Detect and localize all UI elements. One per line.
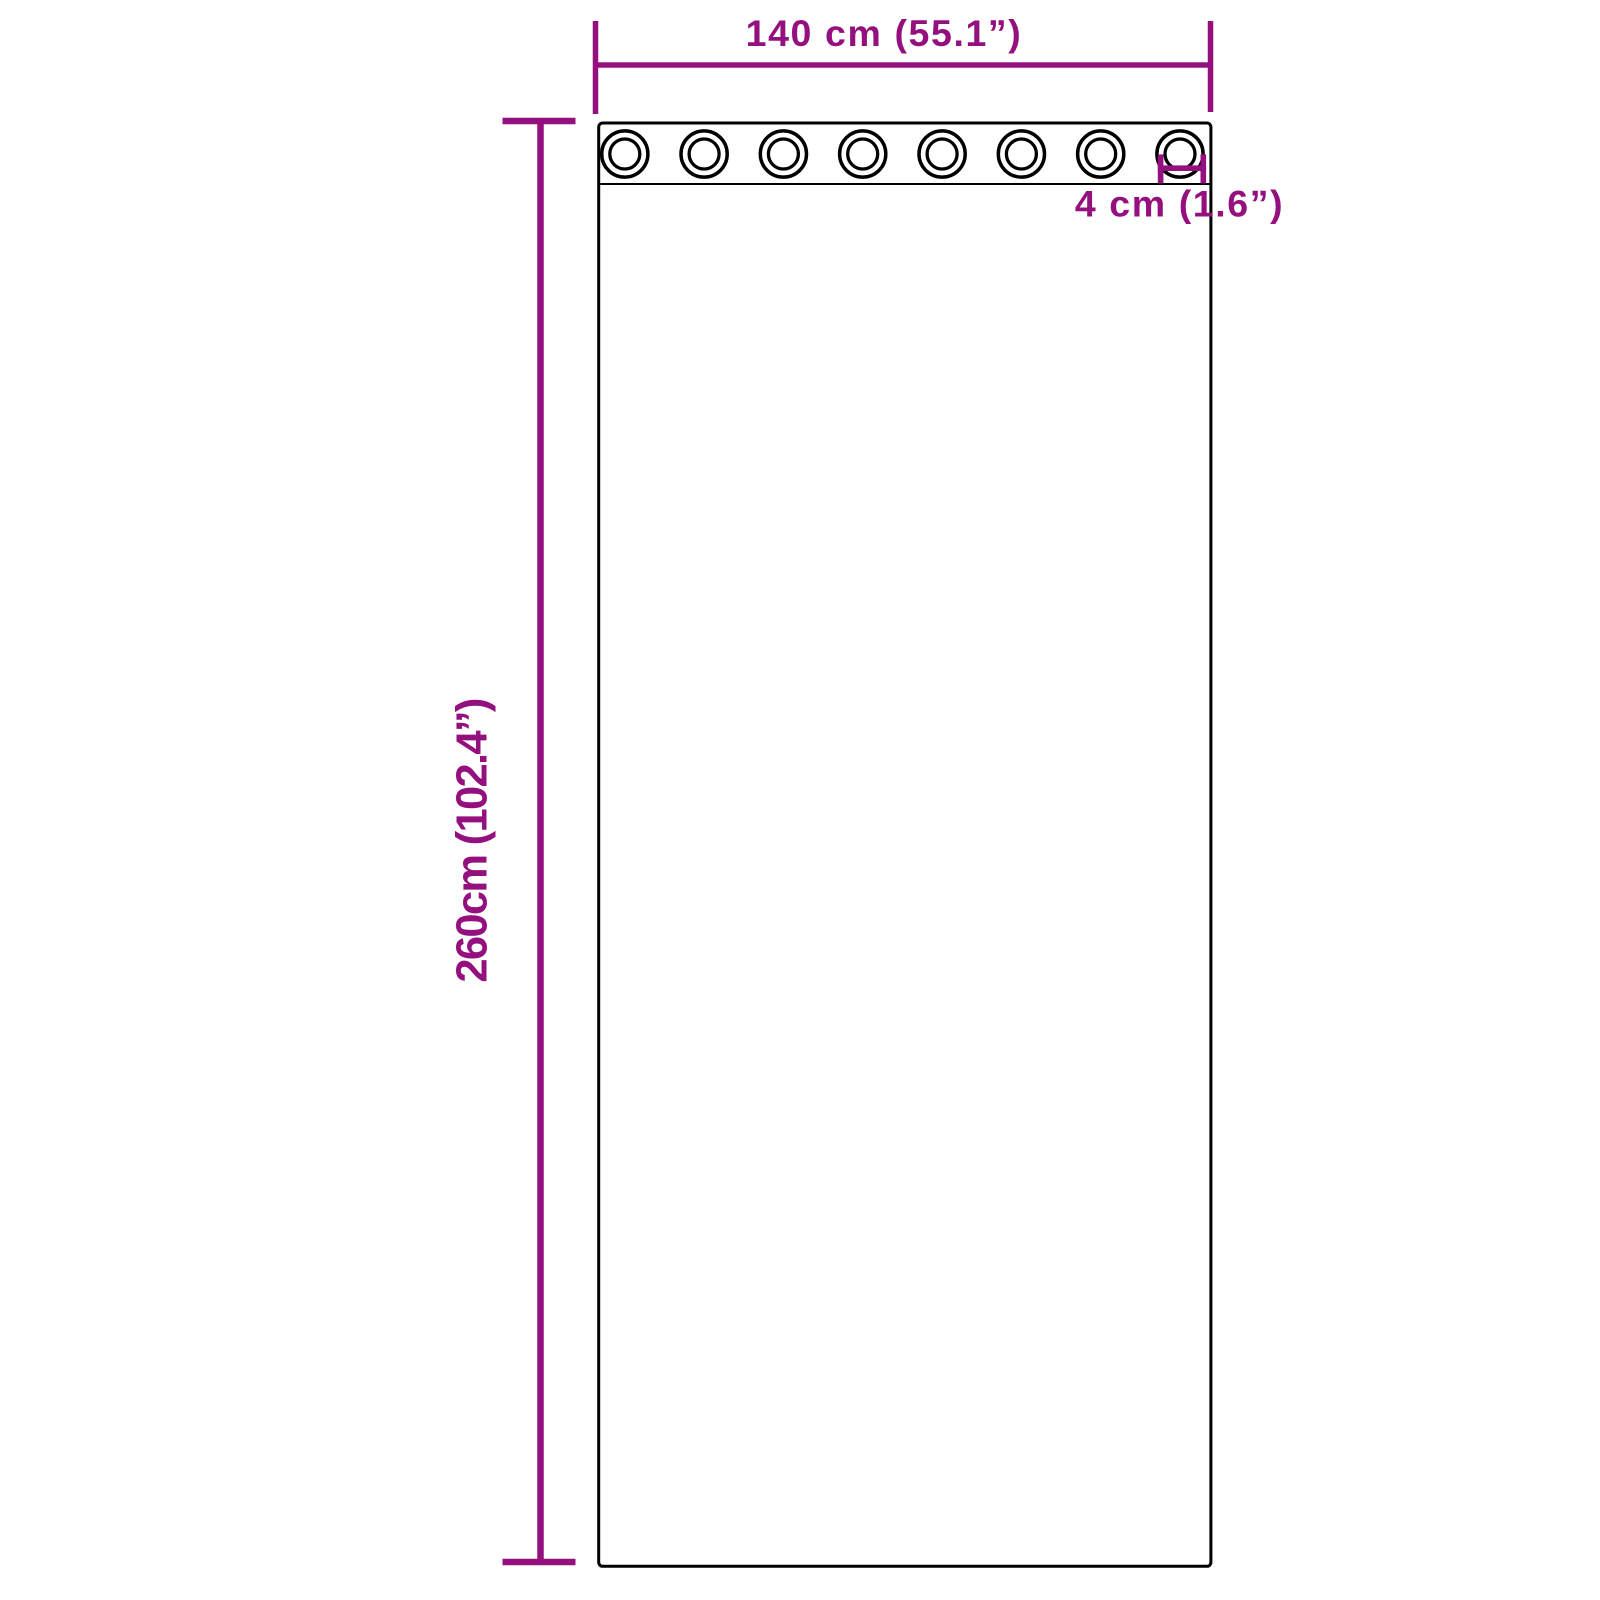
svg-text:140 cm (55.1”): 140 cm (55.1”): [746, 12, 1023, 54]
svg-text:260cm (102.4”): 260cm (102.4”): [449, 699, 497, 983]
svg-text:4 cm (1.6”): 4 cm (1.6”): [1075, 182, 1284, 224]
